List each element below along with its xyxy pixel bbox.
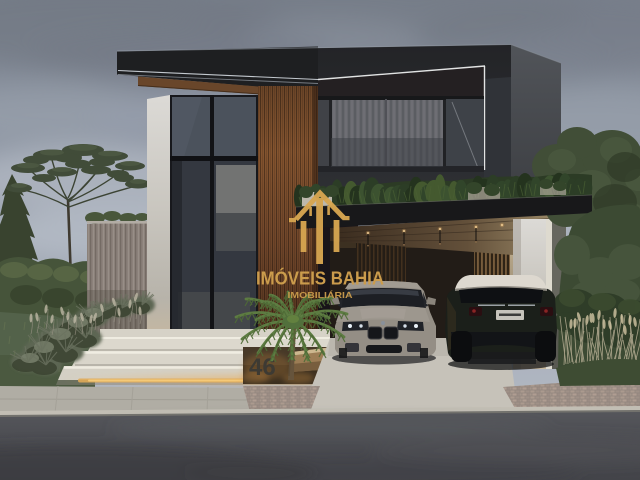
svg-text:IMOBILIÁRIA: IMOBILIÁRIA	[288, 290, 353, 300]
svg-text:IMÓVEIS BAHIA: IMÓVEIS BAHIA	[256, 268, 384, 289]
